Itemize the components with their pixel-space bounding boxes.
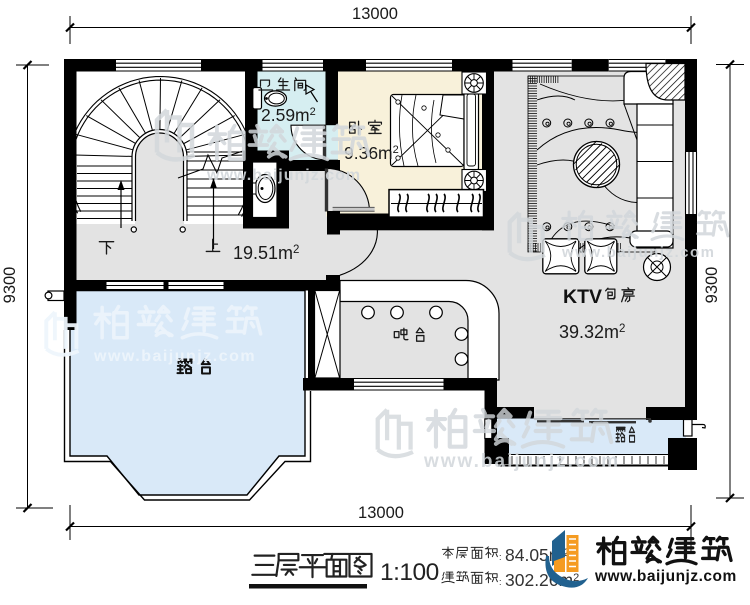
svg-text:1:100: 1:100 [380, 559, 439, 586]
svg-text:19.51m2: 19.51m2 [233, 243, 299, 263]
svg-text:39.32m2: 39.32m2 [559, 322, 625, 342]
svg-text:www.baijunjz.com: www.baijunjz.com [561, 244, 715, 261]
svg-text:www.baijunjz.com: www.baijunjz.com [423, 451, 620, 472]
svg-text:www.baijunjz.com: www.baijunjz.com [206, 167, 361, 184]
svg-text:13000: 13000 [358, 504, 404, 522]
svg-text:www.baijunjz.com: www.baijunjz.com [93, 348, 256, 365]
svg-text::: : [499, 577, 502, 587]
svg-text:www.baijunjz.com: www.baijunjz.com [594, 568, 737, 585]
svg-text:9300: 9300 [1, 267, 19, 304]
svg-text:9300: 9300 [703, 267, 721, 304]
svg-text:13000: 13000 [352, 5, 398, 23]
svg-text::: : [499, 552, 502, 562]
svg-text:KTV: KTV [563, 286, 602, 308]
svg-text:2.59m2: 2.59m2 [261, 105, 316, 125]
